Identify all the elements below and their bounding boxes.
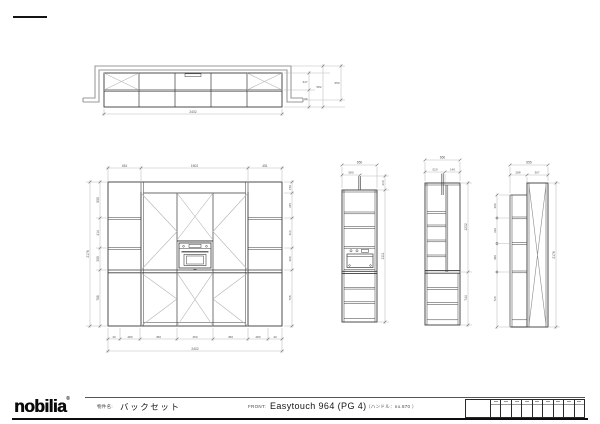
revision-cell (522, 400, 532, 417)
front-top-dim-1: 451 (122, 164, 128, 168)
front-bottom-dim-4: 450 (192, 335, 197, 339)
plan-cabinet (104, 73, 282, 107)
plan-depth-extra-dim: 650 (334, 81, 339, 85)
front-left-dim-1: 500 (96, 197, 100, 203)
revision-cell (501, 400, 511, 417)
front-right-dim-4: 300 (288, 256, 292, 261)
front-door-swings (141, 193, 248, 326)
side1-oven-section (344, 247, 375, 270)
revision-cell (533, 400, 543, 417)
revision-cell (554, 400, 564, 417)
side3-left-dim-2: 330 (493, 228, 497, 233)
front-right-dim-2: 345 (288, 203, 292, 208)
side2-top-dim-b: 140 (450, 168, 455, 172)
front-top-dim-2: 1502 (191, 164, 199, 168)
front-bottom-dim-5: 450 (228, 335, 233, 339)
revision-cell (543, 400, 553, 417)
side2-right-dim-2: 744 (464, 295, 468, 301)
front-bottom-dim-6: 280 (255, 335, 260, 339)
plan-depth-total-dim: 582 (316, 85, 321, 89)
revision-cell-wide (466, 400, 491, 417)
drawing-canvas: 2402 347 96 582 650 (0, 0, 600, 424)
front-label: FRONT: (248, 404, 266, 409)
revision-table (465, 399, 585, 418)
side1-top-dim: 650 (357, 161, 363, 165)
front-left-dim-3: 300 (96, 256, 100, 262)
titleblock-bottom-rule (12, 418, 588, 420)
plan-vent (185, 74, 201, 77)
side2-right-dim-1: 1232 (464, 223, 468, 231)
plan-depth-dim-2: 96 (304, 97, 308, 101)
side1-top-dim-2: 580 (348, 171, 353, 175)
front-bottom-dim-2: 280 (127, 335, 132, 339)
handle-note: （ハンドル：no.870 ） (366, 404, 417, 410)
nobilia-logo: nobilia® (14, 396, 70, 417)
side3-top-dim-a: 288 (515, 171, 520, 175)
nobilia-logo-text: nobilia (14, 396, 66, 416)
front-right-dim-3: 414 (288, 230, 292, 235)
side3-top-dim: 655 (526, 161, 532, 165)
side-view-open-shelves: 655 288 367 300 330 380 720 2176 (493, 161, 560, 330)
side3-panel-cross (529, 185, 546, 325)
revision-cell (512, 400, 522, 417)
front-bottom-dim-1: 40 (112, 335, 116, 339)
plan-width-dim: 2402 (189, 110, 197, 114)
front-bottom-dim-3: 450 (156, 335, 161, 339)
front-total-width-dim: 2402 (191, 347, 199, 351)
front-left-dim-4: 768 (96, 295, 100, 301)
front-right-dim-1: 150 (288, 185, 292, 190)
oven-knob-right (206, 245, 208, 247)
side1-right-dim-2: 2111 (381, 252, 385, 259)
revision-cell (575, 400, 584, 417)
side2-top-dim-a: 520 (432, 168, 437, 172)
side-view-shelf-unit: 660 520 140 1232 744 (424, 156, 472, 328)
side2-top-dim: 660 (440, 156, 446, 160)
front-bottom-dim-7: 40 (273, 335, 277, 339)
project-name-value: バックセット (120, 401, 181, 413)
drawing-sheet: 2402 347 96 582 650 (0, 0, 600, 424)
front-height-dim: 2176 (86, 250, 90, 258)
side3-left-dim-1: 300 (493, 203, 497, 208)
front-value: Easytouch 964 (PG 4) (270, 401, 367, 411)
built-in-oven (177, 240, 213, 269)
side-view-oven: 650 580 210 2111 (341, 161, 389, 325)
side3-left-dim-4: 720 (493, 296, 497, 301)
side3-right-dim: 2176 (552, 251, 556, 259)
oven-display (189, 244, 201, 247)
revision-cell (564, 400, 574, 417)
front-elevation: 451 1502 451 2176 500 414 300 768 150 34… (86, 164, 294, 353)
plan-cross-sections (104, 73, 282, 90)
front-top-dim-3: 451 (262, 164, 268, 168)
logo-trademark-icon: ® (66, 396, 70, 402)
front-dimensions: 451 1502 451 2176 500 414 300 768 150 34… (86, 164, 294, 353)
revision-cell (491, 400, 501, 417)
side3-left-dim-3: 380 (493, 255, 497, 260)
front-right-dim-5: 768 (288, 295, 292, 300)
project-name-label: 物件名: (97, 404, 113, 410)
plan-view: 2402 347 96 582 650 (83, 64, 345, 116)
side3-top-dim-b: 367 (534, 171, 539, 175)
front-left-dim-2: 414 (96, 230, 100, 236)
plan-depth-dim-1: 347 (302, 80, 307, 84)
oven-knob-left (183, 245, 185, 247)
side1-right-dim-1: 210 (381, 180, 385, 185)
